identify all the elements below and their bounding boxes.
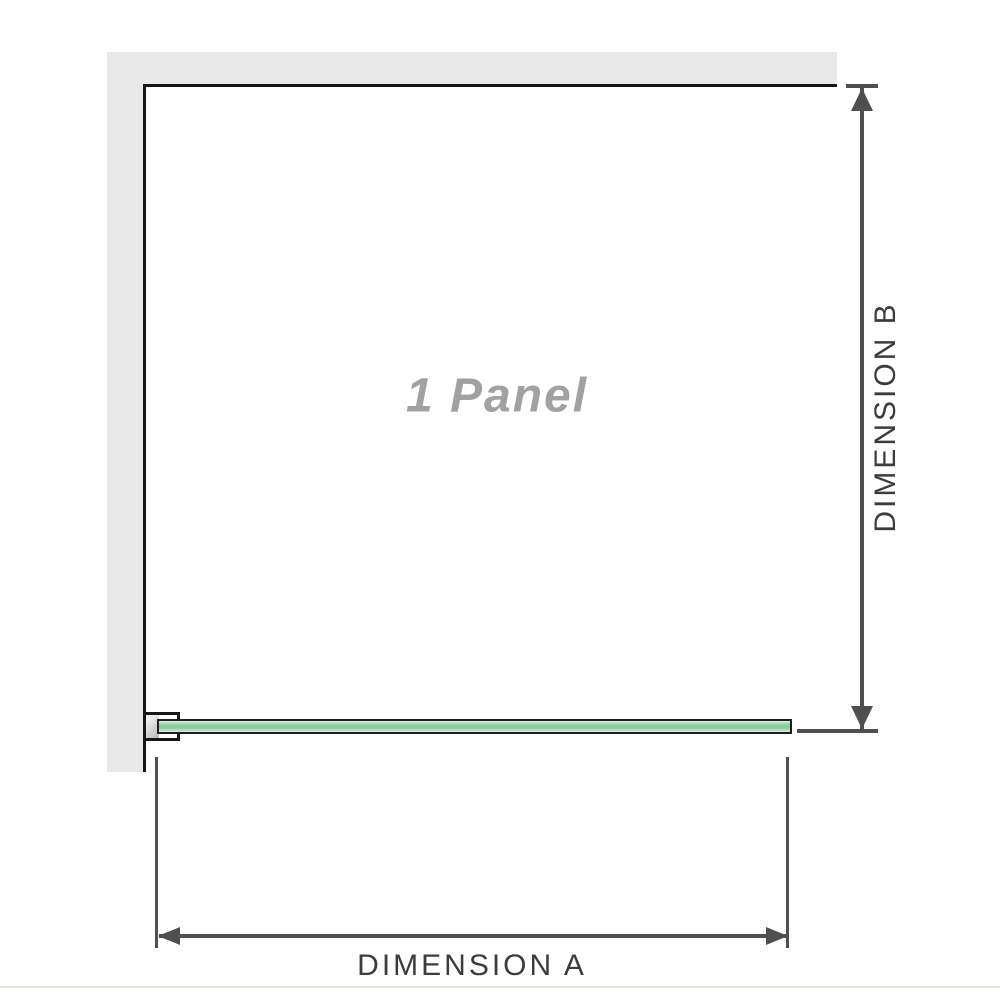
dimension-a-extension-right	[786, 757, 789, 948]
dimension-a-label: DIMENSION A	[357, 949, 587, 983]
arrow-down-icon	[851, 706, 873, 729]
arrow-right-icon	[766, 927, 788, 945]
panel-outline-top	[143, 84, 837, 87]
dimension-b-line	[860, 88, 864, 729]
glass-panel-bar	[157, 719, 792, 734]
shower-panel-dimension-diagram: 1 Panel DIMENSION B DIMENSION A	[0, 0, 1000, 1000]
dimension-a-line	[159, 934, 786, 938]
dimension-b-label: DIMENSION B	[869, 301, 903, 532]
wall-top	[107, 52, 837, 85]
dimension-a-extension-left	[155, 757, 158, 948]
panel-outline-left	[143, 84, 146, 772]
bottom-divider	[0, 986, 1000, 988]
arrow-up-icon	[851, 88, 873, 111]
dimension-b-tick-bottom	[797, 729, 878, 733]
arrow-left-icon	[158, 927, 180, 945]
wall-left	[107, 52, 143, 772]
panel-count-label: 1 Panel	[406, 369, 588, 424]
